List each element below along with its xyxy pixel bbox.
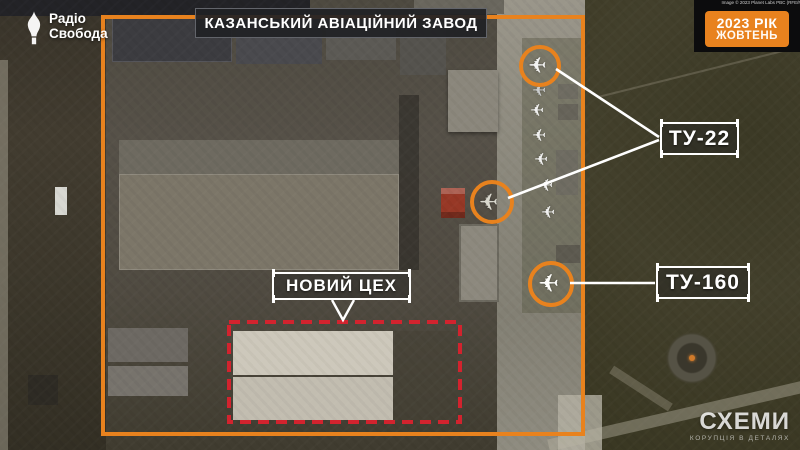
headline-text: КАЗАНСЬКИЙ АВІАЦІЙНИЙ ЗАВОД <box>204 15 477 32</box>
radio-svoboda-wordmark: Радіо Свобода <box>49 11 108 41</box>
schemes-tagline: КОРУПЦІЯ В ДЕТАЛЯХ <box>690 436 790 443</box>
label-new-workshop: НОВИЙ ЦЕХ <box>272 272 411 300</box>
corner-tick <box>660 150 663 158</box>
corner-tick <box>656 263 659 271</box>
schemes-logo: СХЕМИ КОРУПЦІЯ В ДЕТАЛЯХ <box>690 410 790 443</box>
corner-tick <box>736 150 739 158</box>
aircraft-circle-tu22-north <box>519 45 561 87</box>
corner-tick <box>747 263 750 271</box>
radio-svoboda-line1: Радіо <box>49 11 108 26</box>
schemes-wordmark: СХЕМИ <box>690 410 790 434</box>
corner-tick <box>656 294 659 302</box>
corner-tick <box>747 294 750 302</box>
aircraft-circle-tu22-center <box>470 180 514 224</box>
pad-center-marker <box>689 355 695 361</box>
imagery-credit: Image © 2023 Planet Labs PBC (RFE/RL Gra… <box>722 1 799 6</box>
corner-tick <box>408 269 411 277</box>
corner-tick <box>660 119 663 127</box>
corner-tick <box>272 295 275 303</box>
corner-tick <box>272 269 275 277</box>
date-badge-year: 2023 РІК <box>717 16 778 31</box>
label-tu160: ТУ-160 <box>656 266 750 299</box>
radio-svoboda-logo: Радіо Свобода <box>24 11 108 45</box>
radio-svoboda-torch-icon <box>24 11 44 45</box>
label-tu160-text: ТУ-160 <box>666 271 740 295</box>
headline-plate: КАЗАНСЬКИЙ АВІАЦІЙНИЙ ЗАВОД <box>195 8 487 38</box>
aircraft-circle-tu160 <box>528 261 574 307</box>
label-new-workshop-text: НОВИЙ ЦЕХ <box>286 276 397 296</box>
date-badge-month: ЖОВТЕНЬ <box>716 30 778 42</box>
radio-svoboda-line2: Свобода <box>49 26 108 41</box>
circular-pad <box>664 330 720 386</box>
date-credit-panel: Image © 2023 Planet Labs PBC (RFE/RL Gra… <box>694 0 800 52</box>
corner-tick <box>408 295 411 303</box>
corner-tick <box>736 119 739 127</box>
date-badge: 2023 РІК ЖОВТЕНЬ <box>705 11 789 47</box>
plant-boundary-frame <box>101 15 585 436</box>
annotated-satellite-graphic: ✈ ✈ ✈ ✈ ✈ ✈ ✈ ✈ ✈ ТУ-22 ТУ-160 НОВИЙ ЦЕХ… <box>0 0 800 450</box>
label-tu22: ТУ-22 <box>660 122 739 155</box>
label-tu22-text: ТУ-22 <box>669 127 730 151</box>
road <box>0 60 8 450</box>
